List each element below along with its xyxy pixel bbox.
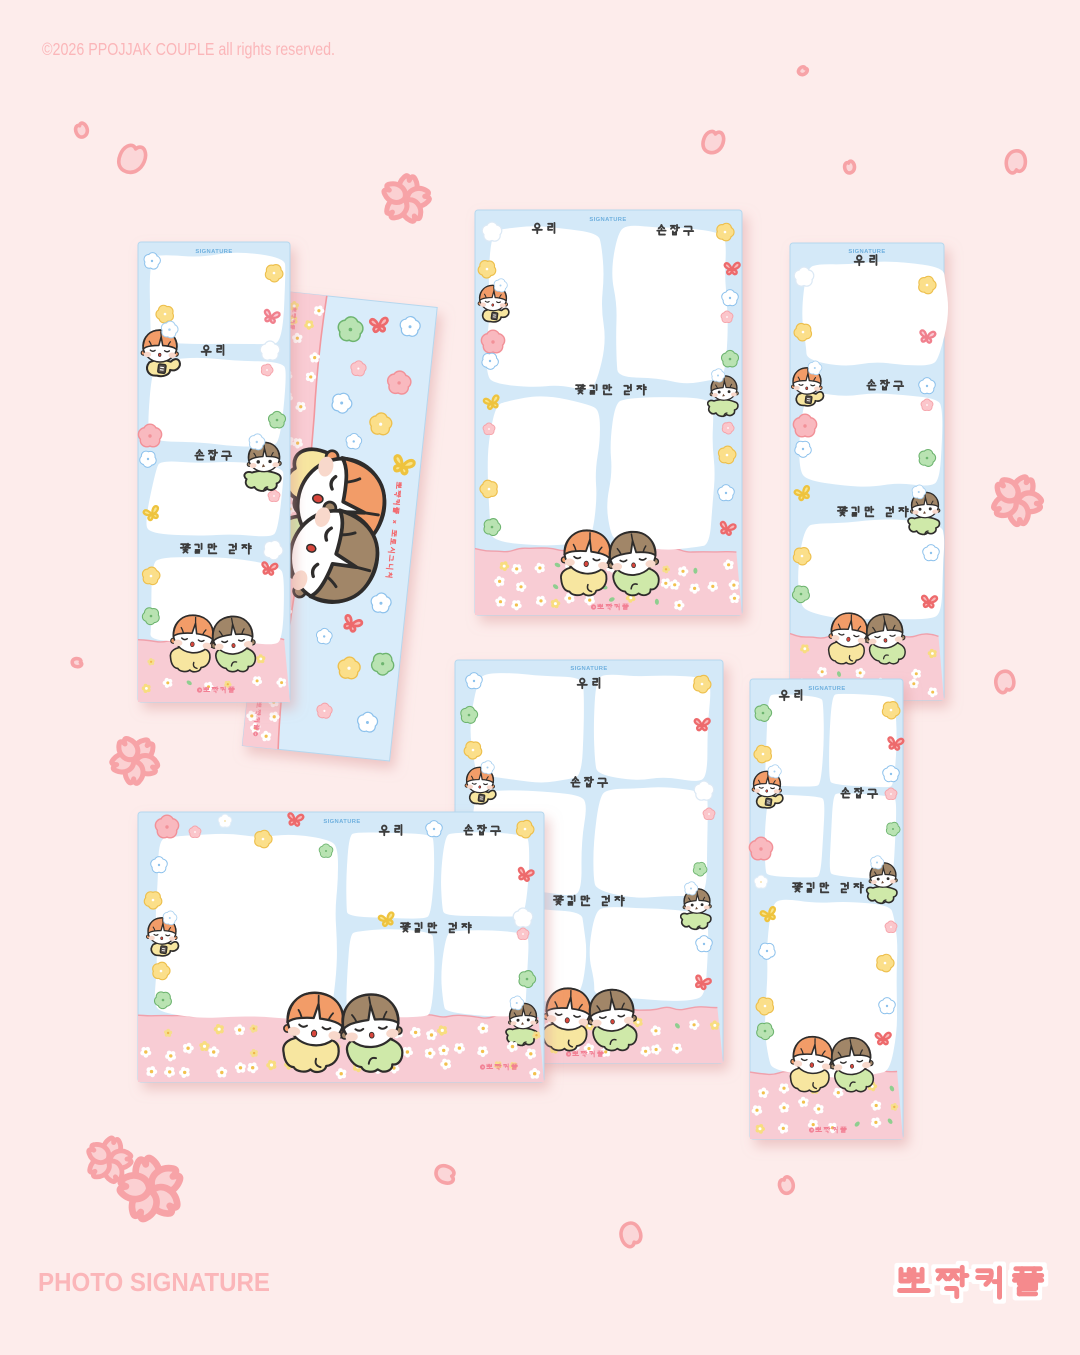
svg-text:SIGNATURE: SIGNATURE	[589, 217, 626, 223]
svg-text:SIGNATURE: SIGNATURE	[808, 686, 845, 692]
svg-text:PHOTO SIGNATURE: PHOTO SIGNATURE	[38, 1267, 270, 1297]
svg-text:SIGNATURE: SIGNATURE	[570, 666, 607, 672]
svg-text:SIGNATURE: SIGNATURE	[848, 249, 885, 255]
svg-text:©2026 PPOJJAK COUPLE all right: ©2026 PPOJJAK COUPLE all rights reserved…	[42, 39, 335, 59]
svg-text:SIGNATURE: SIGNATURE	[323, 819, 360, 825]
svg-text:SIGNATURE: SIGNATURE	[195, 249, 232, 255]
